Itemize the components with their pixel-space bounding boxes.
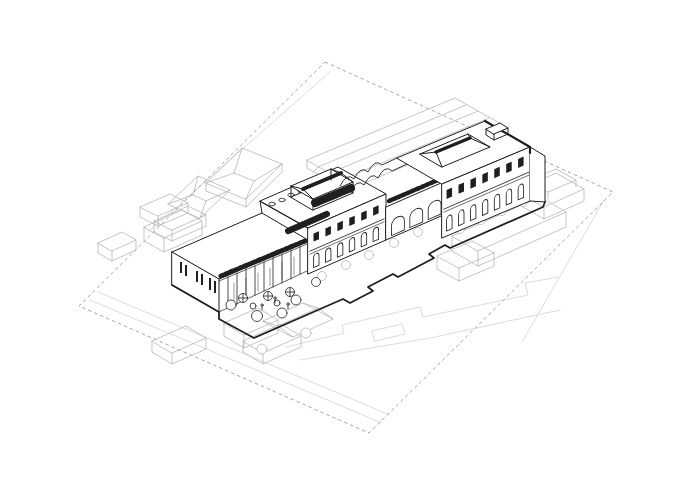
axonometric-drawing bbox=[0, 0, 700, 495]
drawing-canvas bbox=[0, 0, 700, 495]
right-wing-end-face bbox=[530, 147, 545, 202]
